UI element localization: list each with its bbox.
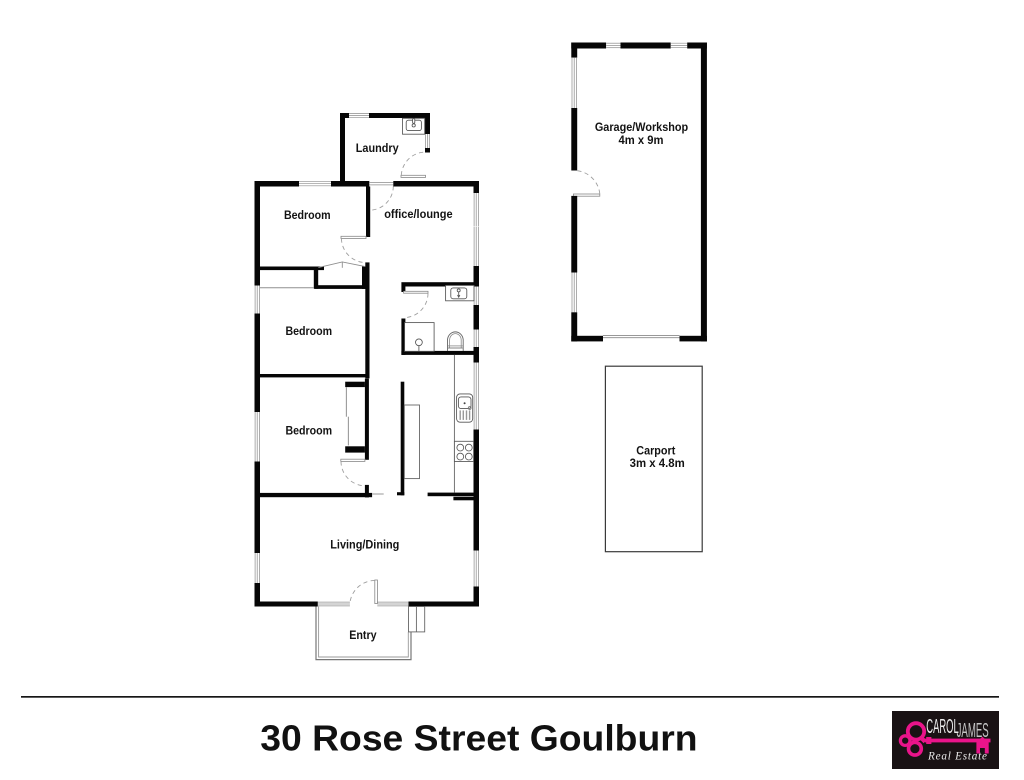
svg-text:Bedroom: Bedroom (284, 208, 331, 222)
svg-text:Garage/Workshop: Garage/Workshop (595, 120, 688, 134)
svg-text:JAMES: JAMES (957, 720, 989, 742)
svg-text:30 Rose Street Goulburn: 30 Rose Street Goulburn (260, 718, 697, 759)
svg-text:3m x 4.8m: 3m x 4.8m (630, 456, 685, 470)
svg-text:Living/Dining: Living/Dining (330, 538, 399, 552)
svg-text:Entry: Entry (349, 628, 377, 642)
svg-text:4m x 9m: 4m x 9m (619, 133, 664, 147)
svg-text:Real Estate: Real Estate (927, 751, 987, 763)
svg-text:Bedroom: Bedroom (285, 324, 332, 338)
svg-text:Laundry: Laundry (356, 141, 399, 155)
svg-text:CAROL: CAROL (926, 716, 959, 738)
svg-text:Bedroom: Bedroom (285, 424, 332, 438)
svg-text:office/lounge: office/lounge (384, 207, 453, 221)
